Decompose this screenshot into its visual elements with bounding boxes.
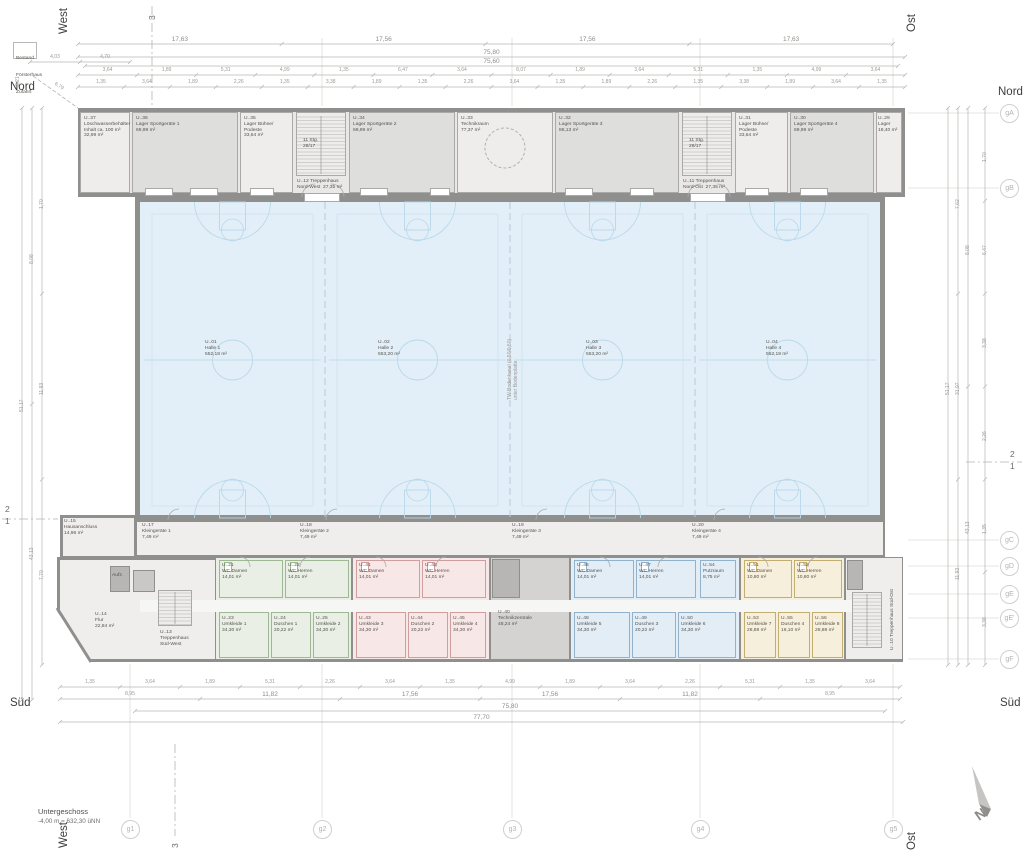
grid-bubble-gE: gE (1000, 585, 1019, 604)
grid-bubble-gA: gA (1000, 104, 1019, 123)
grid-bubble-gE': gE' (1000, 609, 1019, 628)
grid-bubble-gB: gB (1000, 179, 1019, 198)
grid-bubble-gC: gC (1000, 531, 1019, 550)
grid-bubble-gD: gD (1000, 557, 1019, 576)
grid-bubble-g4: g4 (691, 820, 710, 839)
grid-bubble-gF: gF (1000, 650, 1019, 669)
grid-bubbles-layer: g1g2g3g4g5gAgBgCgDgEgE'gF (0, 0, 1024, 851)
grid-bubble-g1: g1 (121, 820, 140, 839)
floor-plan-sheet: N West West Nord Nord Ost Ost Süd Süd 3 … (0, 0, 1024, 851)
grid-bubble-g5: g5 (884, 820, 903, 839)
grid-bubble-g3: g3 (503, 820, 522, 839)
grid-bubble-g2: g2 (313, 820, 332, 839)
